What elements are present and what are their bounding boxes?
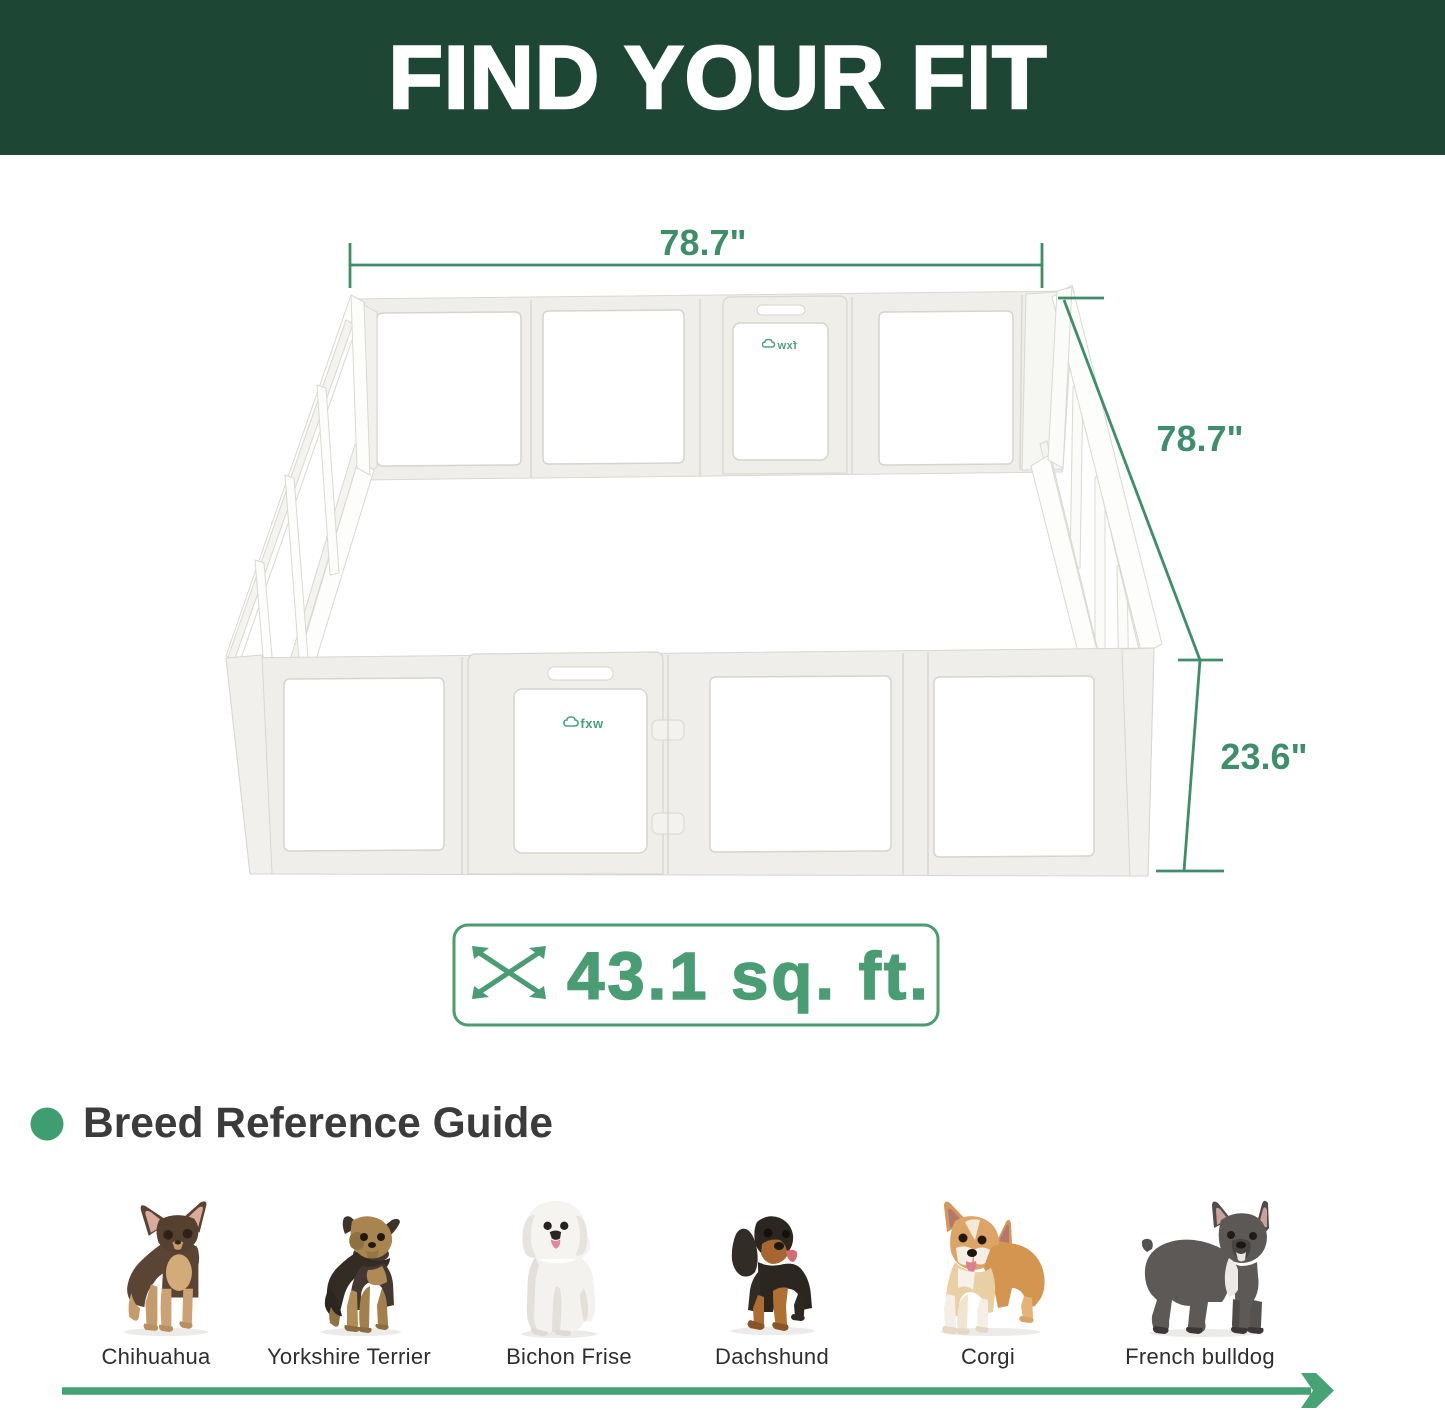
svg-text:23.6": 23.6" [1220,736,1307,777]
svg-text:43.1 sq. ft.: 43.1 sq. ft. [567,939,931,1014]
svg-text:Yorkshire Terrier: Yorkshire Terrier [267,1344,431,1369]
svg-text:Breed Reference Guide: Breed Reference Guide [83,1100,553,1147]
svg-text:fxw: fxw [580,716,604,731]
svg-text:78.7": 78.7" [659,222,746,263]
svg-text:French bulldog: French bulldog [1125,1344,1275,1369]
svg-text:Corgi: Corgi [961,1344,1015,1369]
svg-text:fxw: fxw [777,340,797,352]
svg-text:Chihuahua: Chihuahua [101,1344,211,1369]
svg-text:FIND YOUR FIT: FIND YOUR FIT [388,27,1047,127]
svg-text:Bichon Frise: Bichon Frise [506,1344,632,1369]
svg-text:Dachshund: Dachshund [715,1344,829,1369]
svg-text:78.7": 78.7" [1156,418,1243,459]
